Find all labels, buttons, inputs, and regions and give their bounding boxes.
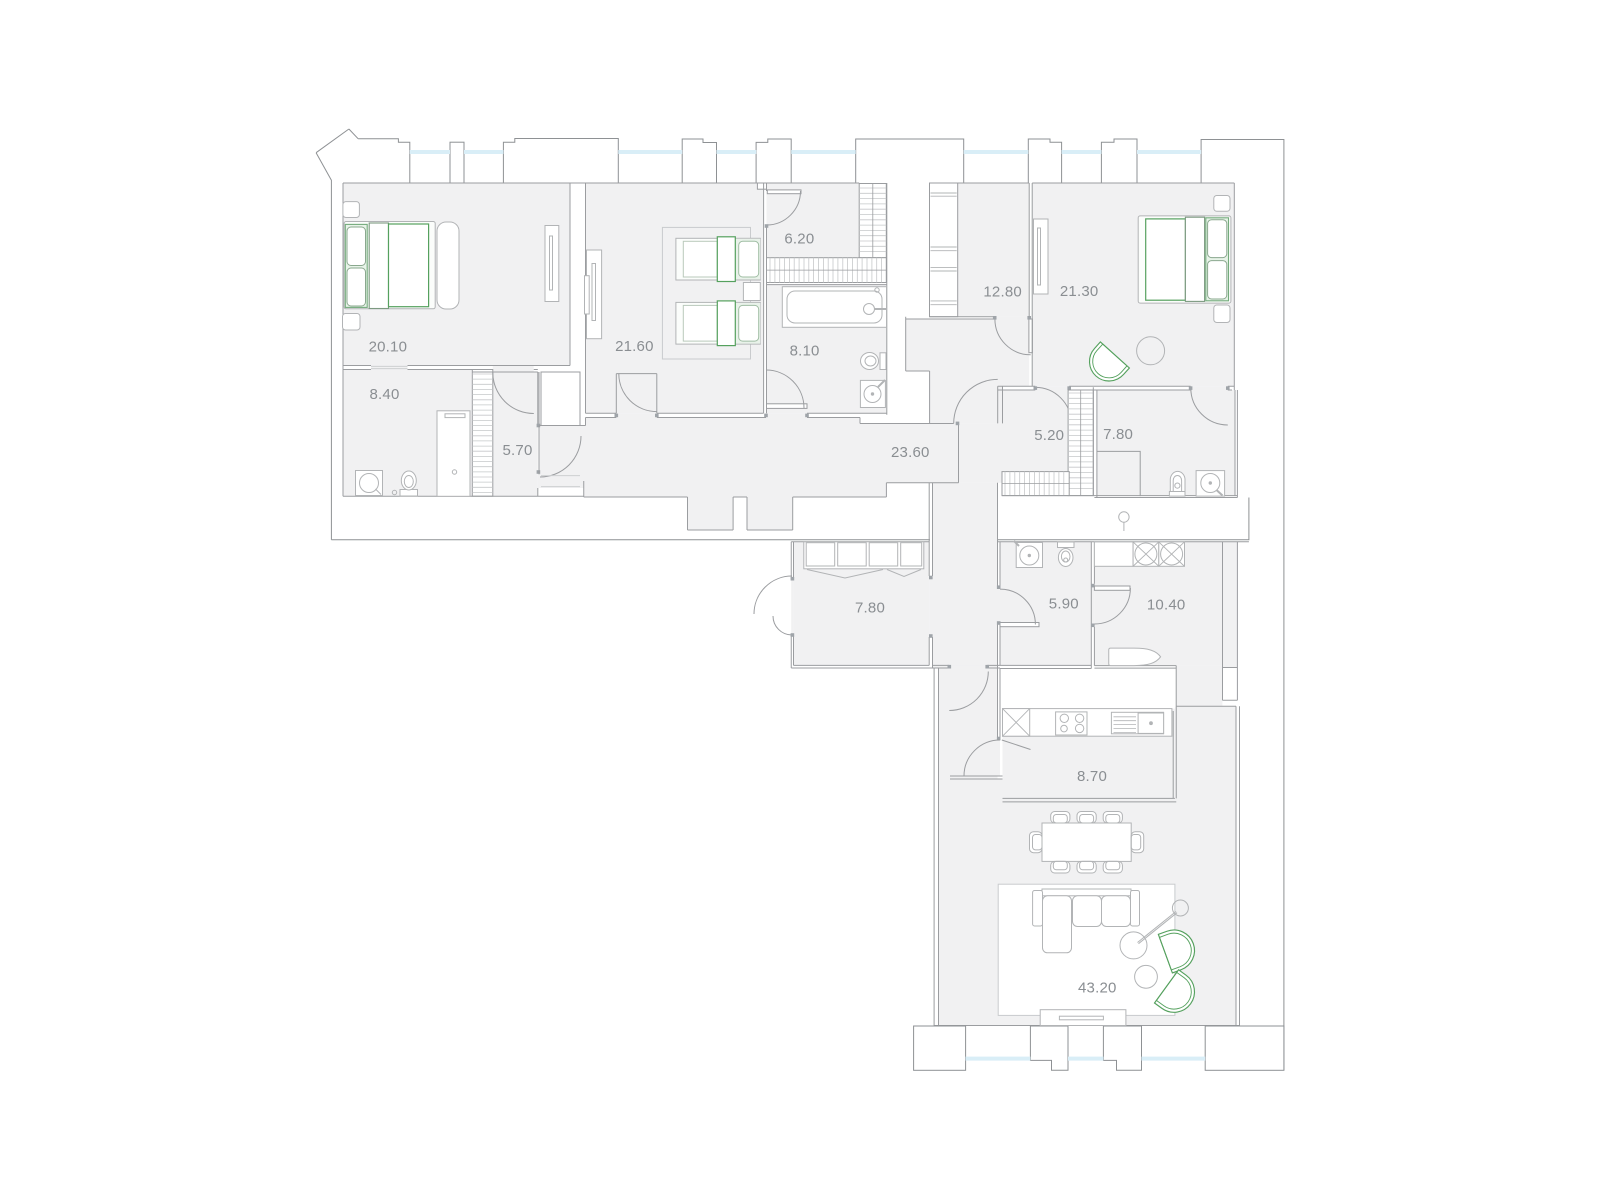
svg-text:8.10: 8.10 [790, 343, 820, 360]
svg-text:5.20: 5.20 [1034, 427, 1064, 444]
svg-text:5.90: 5.90 [1049, 596, 1079, 613]
svg-text:5.70: 5.70 [503, 442, 533, 459]
svg-text:43.20: 43.20 [1078, 980, 1117, 997]
svg-text:23.60: 23.60 [891, 444, 930, 461]
svg-text:12.80: 12.80 [983, 284, 1022, 301]
svg-text:6.20: 6.20 [784, 230, 814, 247]
svg-text:8.70: 8.70 [1077, 768, 1107, 785]
svg-text:7.80: 7.80 [855, 600, 885, 617]
svg-text:21.30: 21.30 [1060, 283, 1099, 300]
svg-text:20.10: 20.10 [369, 338, 408, 355]
svg-text:8.40: 8.40 [370, 386, 400, 403]
svg-text:21.60: 21.60 [615, 338, 654, 355]
svg-text:7.80: 7.80 [1103, 426, 1133, 443]
svg-text:10.40: 10.40 [1147, 597, 1186, 614]
